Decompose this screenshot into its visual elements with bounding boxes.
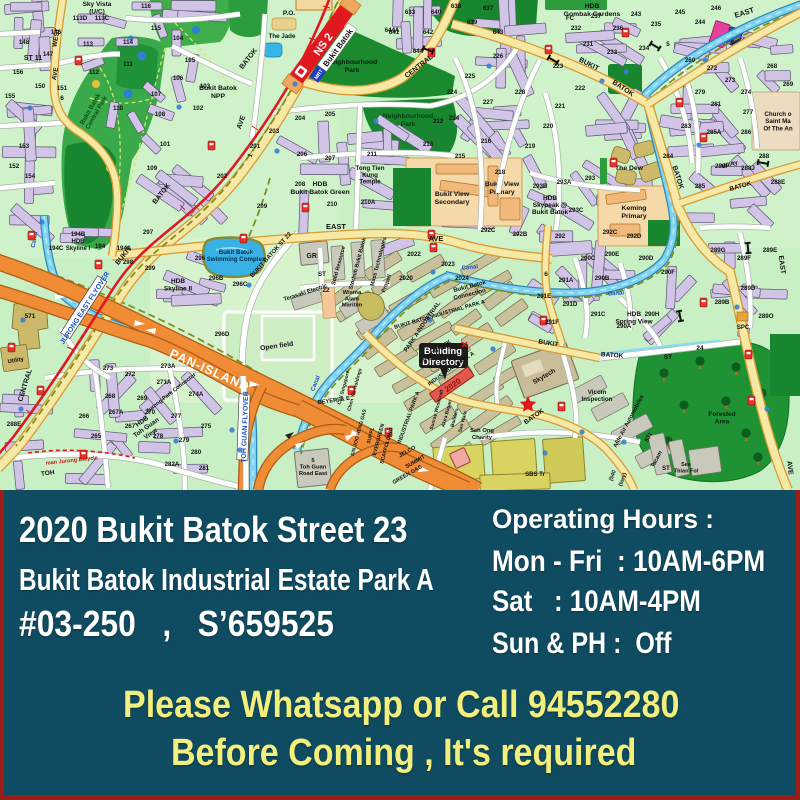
svg-text:289B: 289B — [715, 299, 730, 306]
svg-text:HDB: HDB — [313, 181, 328, 188]
svg-text:115: 115 — [151, 25, 162, 32]
svg-text:269: 269 — [783, 81, 794, 88]
svg-text:Sky Vista: Sky Vista — [83, 1, 112, 8]
svg-text:Road East: Road East — [299, 471, 327, 477]
svg-text:154: 154 — [25, 173, 36, 180]
svg-text:637: 637 — [483, 5, 494, 12]
svg-text:24: 24 — [696, 345, 704, 352]
svg-text:288E: 288E — [771, 179, 785, 186]
svg-text:291E: 291E — [537, 293, 551, 300]
svg-text:281: 281 — [711, 101, 722, 108]
svg-text:2022: 2022 — [407, 251, 421, 258]
svg-text:Alam: Alam — [345, 296, 359, 302]
svg-text:The Jade: The Jade — [269, 33, 296, 40]
svg-text:292D: 292D — [627, 233, 642, 240]
svg-text:Keming: Keming — [622, 205, 647, 212]
svg-text:147: 147 — [43, 51, 54, 58]
svg-text:ST: ST — [664, 354, 672, 361]
svg-text:151: 151 — [57, 85, 68, 92]
svg-text:290E: 290E — [605, 251, 619, 258]
svg-text:269: 269 — [137, 395, 148, 402]
svg-text:110: 110 — [113, 105, 124, 112]
svg-text:209: 209 — [257, 203, 268, 210]
svg-text:Temple: Temple — [359, 179, 381, 186]
svg-text:268: 268 — [767, 63, 778, 70]
svg-text:146: 146 — [51, 29, 62, 36]
svg-text:Church o: Church o — [764, 111, 791, 118]
svg-text:2020: 2020 — [399, 275, 413, 282]
svg-text:267: 267 — [125, 423, 136, 430]
svg-text:See: See — [681, 462, 691, 468]
svg-text:237: 237 — [591, 13, 602, 20]
svg-text:288E: 288E — [7, 421, 21, 428]
svg-text:289D: 289D — [741, 285, 756, 292]
svg-text:275: 275 — [201, 423, 212, 430]
svg-text:HDB: HDB — [543, 195, 557, 202]
svg-text:Neighbourhood: Neighbourhood — [383, 113, 434, 120]
svg-text:22: 22 — [323, 287, 330, 294]
svg-text:236: 236 — [613, 25, 624, 32]
svg-text:290H: 290H — [645, 311, 660, 318]
svg-text:227: 227 — [483, 99, 494, 106]
svg-text:228: 228 — [515, 89, 526, 96]
svg-text:214: 214 — [449, 115, 460, 122]
svg-text:105: 105 — [185, 57, 196, 64]
svg-text:103: 103 — [200, 83, 211, 90]
svg-text:285A: 285A — [707, 129, 722, 136]
svg-text:Charity: Charity — [472, 435, 493, 441]
svg-text:Saint Ma: Saint Ma — [765, 118, 791, 125]
svg-text:644A: 644A — [385, 27, 400, 34]
svg-text:ST: ST — [318, 271, 326, 278]
svg-text:205: 205 — [325, 111, 336, 118]
svg-text:289F: 289F — [737, 255, 751, 262]
svg-text:277: 277 — [743, 109, 754, 116]
svg-text:285: 285 — [695, 183, 706, 190]
svg-text:HDB: HDB — [72, 239, 86, 245]
svg-text:2024: 2024 — [455, 275, 469, 282]
svg-text:The Dew: The Dew — [615, 165, 644, 172]
svg-text:Area: Area — [715, 419, 730, 426]
svg-text:109: 109 — [147, 165, 158, 172]
svg-text:111: 111 — [123, 61, 133, 68]
svg-text:296D: 296D — [215, 331, 230, 338]
svg-text:219: 219 — [525, 143, 536, 150]
svg-text:NPP: NPP — [211, 93, 225, 100]
svg-text:113C: 113C — [95, 15, 110, 22]
svg-text:292B: 292B — [513, 231, 528, 238]
svg-text:Bukit Batok: Bukit Batok — [532, 209, 569, 216]
svg-text:640: 640 — [431, 9, 442, 16]
svg-text:Park: Park — [345, 67, 360, 74]
svg-text:268: 268 — [105, 393, 116, 400]
svg-text:292C: 292C — [603, 229, 618, 236]
svg-text:6: 6 — [544, 271, 548, 278]
svg-text:ST 11: ST 11 — [24, 55, 42, 62]
svg-text:155: 155 — [5, 93, 16, 100]
svg-text:Swimming Complex: Swimming Complex — [207, 256, 266, 263]
svg-text:274: 274 — [741, 89, 752, 96]
svg-text:Of The An: Of The An — [763, 125, 793, 132]
svg-text:288J: 288J — [741, 165, 755, 172]
svg-text:225: 225 — [465, 73, 476, 80]
svg-text:SPC: SPC — [737, 325, 750, 331]
svg-text:101: 101 — [160, 141, 171, 148]
svg-text:HDB: HDB — [171, 278, 185, 285]
svg-text:216: 216 — [481, 138, 492, 145]
svg-text:288F: 288F — [715, 163, 729, 170]
svg-text:113: 113 — [83, 41, 94, 48]
svg-text:202: 202 — [217, 173, 228, 180]
svg-text:AVE: AVE — [429, 234, 444, 243]
svg-text:270: 270 — [145, 409, 156, 416]
svg-text:2023: 2023 — [441, 261, 455, 268]
svg-text:Forested: Forested — [708, 411, 735, 418]
svg-text:279: 279 — [695, 89, 706, 96]
svg-text:156: 156 — [13, 69, 24, 76]
svg-text:273: 273 — [103, 365, 114, 372]
svg-text:Bukit View: Bukit View — [435, 191, 470, 198]
svg-text:290F: 290F — [661, 269, 675, 276]
svg-text:639: 639 — [467, 19, 478, 26]
svg-text:234: 234 — [639, 45, 650, 52]
svg-text:210: 210 — [327, 201, 338, 208]
svg-text:644: 644 — [413, 48, 424, 55]
svg-text:P.O.: P.O. — [283, 10, 295, 17]
svg-text:245: 245 — [675, 9, 686, 16]
svg-text:Inspection: Inspection — [582, 396, 613, 403]
svg-text:107: 107 — [151, 91, 162, 98]
svg-text:201: 201 — [250, 143, 261, 150]
svg-text:298: 298 — [123, 259, 134, 266]
svg-text:288: 288 — [759, 153, 770, 160]
svg-text:277: 277 — [171, 413, 182, 420]
svg-text:226: 226 — [493, 53, 504, 60]
svg-text:235: 235 — [651, 21, 662, 28]
svg-text:283: 283 — [681, 123, 692, 130]
svg-text:ST: ST — [662, 466, 670, 472]
svg-text:221: 221 — [555, 103, 566, 110]
svg-text:194B: 194B — [71, 232, 86, 238]
svg-text:Canal: Canal — [608, 290, 625, 297]
svg-text:267A: 267A — [109, 409, 124, 416]
svg-text:116: 116 — [141, 3, 152, 10]
svg-text:260: 260 — [685, 57, 696, 64]
svg-text:291D: 291D — [563, 301, 578, 308]
svg-text:292: 292 — [555, 233, 566, 240]
svg-text:271A: 271A — [157, 379, 172, 386]
svg-text:293C: 293C — [569, 207, 584, 214]
svg-text:232: 232 — [571, 25, 582, 32]
svg-text:296C: 296C — [233, 281, 248, 288]
svg-text:299: 299 — [145, 265, 156, 272]
svg-text:194: 194 — [95, 243, 106, 250]
svg-text:222: 222 — [575, 85, 586, 92]
svg-text:EAST: EAST — [326, 222, 346, 231]
svg-text:152: 152 — [9, 163, 20, 170]
svg-text:233: 233 — [607, 49, 618, 56]
svg-text:642: 642 — [423, 29, 434, 36]
svg-text:220: 220 — [543, 123, 554, 130]
svg-text:102: 102 — [193, 105, 204, 112]
svg-text:273A: 273A — [161, 363, 176, 370]
svg-text:290D: 290D — [639, 255, 654, 262]
svg-text:Skyline II: Skyline II — [164, 286, 192, 293]
svg-text:Maritim: Maritim — [342, 303, 363, 309]
svg-text:Toh Guan: Toh Guan — [300, 465, 327, 471]
svg-text:206: 206 — [297, 151, 308, 158]
svg-text:Primary: Primary — [621, 213, 647, 220]
svg-text:207: 207 — [325, 155, 336, 162]
svg-text:296: 296 — [195, 255, 206, 262]
svg-text:571: 571 — [25, 313, 36, 320]
svg-text:272: 272 — [707, 65, 718, 72]
svg-text:Primary: Primary — [489, 189, 515, 196]
svg-text:281: 281 — [199, 465, 210, 472]
svg-text:633: 633 — [405, 9, 416, 16]
svg-text:286: 286 — [741, 129, 752, 136]
svg-text:208: 208 — [295, 181, 306, 188]
svg-text:Vicom: Vicom — [588, 389, 607, 396]
svg-text:279: 279 — [179, 437, 190, 444]
svg-text:194C: 194C — [49, 245, 64, 252]
svg-text:274A: 274A — [189, 391, 204, 398]
svg-text:203: 203 — [269, 128, 280, 135]
svg-text:244: 244 — [695, 19, 706, 26]
svg-text:213: 213 — [423, 141, 434, 148]
svg-text:6: 6 — [60, 95, 64, 102]
svg-text:104: 104 — [173, 35, 184, 42]
svg-text:282A: 282A — [165, 461, 180, 468]
svg-text:289E: 289E — [763, 247, 777, 254]
svg-text:215: 215 — [455, 153, 466, 160]
svg-text:Secondary: Secondary — [435, 199, 470, 206]
svg-text:265: 265 — [91, 433, 102, 440]
svg-text:291C: 291C — [591, 311, 606, 318]
svg-text:243: 243 — [631, 11, 642, 18]
svg-text:112: 112 — [89, 69, 100, 76]
svg-text:638: 638 — [451, 3, 462, 10]
svg-text:246: 246 — [711, 5, 722, 12]
svg-text:Bukit Batok: Bukit Batok — [219, 249, 254, 256]
svg-text:266: 266 — [79, 413, 90, 420]
svg-text:148: 148 — [19, 39, 30, 46]
svg-text:153: 153 — [19, 143, 30, 150]
svg-text:289O: 289O — [758, 313, 773, 320]
svg-text:290C: 290C — [581, 255, 596, 262]
svg-text:293: 293 — [585, 175, 596, 182]
svg-text:Skyline I: Skyline I — [66, 246, 91, 252]
svg-text:194A: 194A — [117, 245, 132, 252]
svg-text:223: 223 — [553, 63, 564, 70]
svg-text:5: 5 — [666, 41, 670, 48]
svg-text:Bukit Batok Green: Bukit Batok Green — [290, 189, 349, 196]
svg-text:293A: 293A — [557, 179, 572, 186]
svg-text:SBS Tr: SBS Tr — [525, 472, 545, 478]
svg-text:204: 204 — [295, 115, 306, 122]
svg-text:113D: 113D — [73, 15, 88, 22]
svg-text:643: 643 — [493, 29, 504, 36]
svg-text:231: 231 — [583, 41, 594, 48]
svg-text:291A: 291A — [559, 277, 574, 284]
svg-text:108: 108 — [155, 111, 166, 118]
svg-text:292C: 292C — [481, 227, 496, 234]
svg-text:Wisma: Wisma — [343, 290, 362, 296]
svg-text:278: 278 — [153, 433, 164, 440]
svg-text:289G: 289G — [710, 247, 725, 254]
svg-text:291F: 291F — [545, 319, 559, 326]
svg-text:273: 273 — [725, 77, 736, 84]
svg-text:272: 272 — [125, 371, 136, 378]
svg-text:211: 211 — [367, 151, 378, 158]
svg-text:106: 106 — [173, 75, 184, 82]
svg-text:114: 114 — [123, 39, 134, 46]
svg-text:Thian Fol: Thian Fol — [674, 469, 699, 475]
svg-text:290B: 290B — [595, 275, 610, 282]
svg-text:297: 297 — [143, 229, 154, 236]
svg-text:HDB: HDB — [627, 311, 641, 318]
svg-text:218: 218 — [495, 169, 506, 176]
svg-text:224: 224 — [447, 89, 458, 96]
svg-text:210A: 210A — [361, 199, 376, 206]
svg-text:HDB: HDB — [585, 3, 600, 10]
svg-text:280: 280 — [191, 449, 202, 456]
svg-text:290A: 290A — [617, 323, 632, 330]
svg-text:284: 284 — [663, 153, 674, 160]
svg-text:296B: 296B — [209, 275, 224, 282]
svg-text:293B: 293B — [533, 183, 548, 190]
svg-text:150: 150 — [35, 83, 46, 90]
svg-text:212: 212 — [433, 118, 444, 125]
svg-text:Seh Ong: Seh Ong — [470, 428, 494, 434]
svg-text:Skypeak @: Skypeak @ — [533, 202, 568, 209]
